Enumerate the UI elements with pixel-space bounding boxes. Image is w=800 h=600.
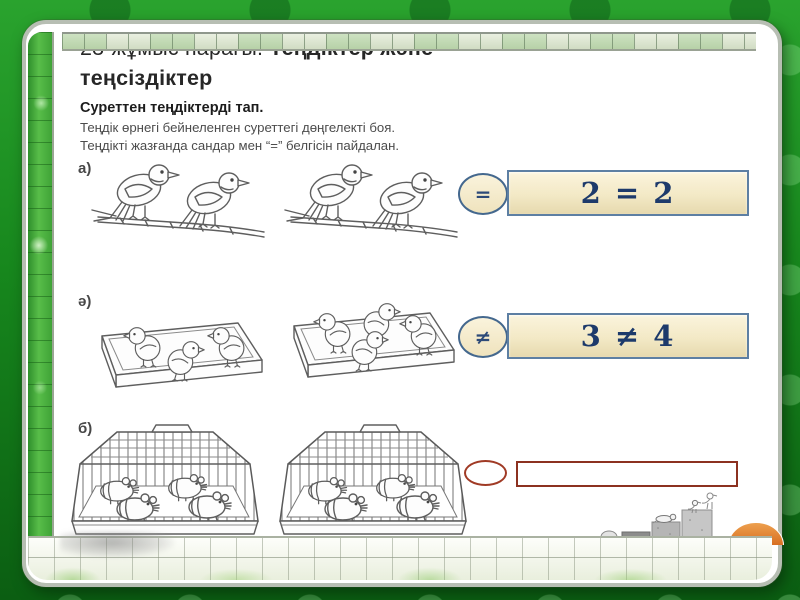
task-instructions: Теңдік өрнегі бейнеленген суреттегі дөңг… xyxy=(80,119,399,156)
row-b-picture-chicks xyxy=(86,296,458,400)
row-a-picture-birds xyxy=(90,160,460,240)
row-a-sign-circle[interactable]: = xyxy=(458,173,508,215)
gray-smudge-decoration xyxy=(60,532,175,558)
row-a-sign: = xyxy=(475,182,492,206)
row-b-sign-circle[interactable]: ≠ xyxy=(458,316,508,358)
row-a-answer: 2 = 2 xyxy=(581,176,676,210)
green-bokeh-background: 23-жұмыс парағы. Теңдіктер және теңсізді… xyxy=(0,0,800,600)
top-tile-border xyxy=(62,32,756,51)
row-b-sign: ≠ xyxy=(475,325,492,349)
row-a-answer-box[interactable]: 2 = 2 xyxy=(507,170,749,216)
row-c-sign-circle-empty[interactable] xyxy=(464,460,507,486)
task-heading: Суреттен теңдіктерді тап. xyxy=(80,100,263,116)
row-c-picture-cages xyxy=(70,422,470,540)
left-tile-border xyxy=(28,32,54,540)
row-b-answer: 3 ≠ 4 xyxy=(581,319,676,353)
instruction-line-2: Теңдікті жазғанда сандар мен “=” белгісі… xyxy=(80,137,399,155)
instruction-line-1: Теңдік өрнегі бейнеленген суреттегі дөңг… xyxy=(80,119,399,137)
row-b-answer-box[interactable]: 3 ≠ 4 xyxy=(507,313,749,359)
worksheet-slide: 23-жұмыс парағы. Теңдіктер және теңсізді… xyxy=(22,20,782,587)
row-c-answer-box-empty[interactable] xyxy=(516,461,738,487)
title-line-2: теңсіздіктер xyxy=(80,64,433,94)
